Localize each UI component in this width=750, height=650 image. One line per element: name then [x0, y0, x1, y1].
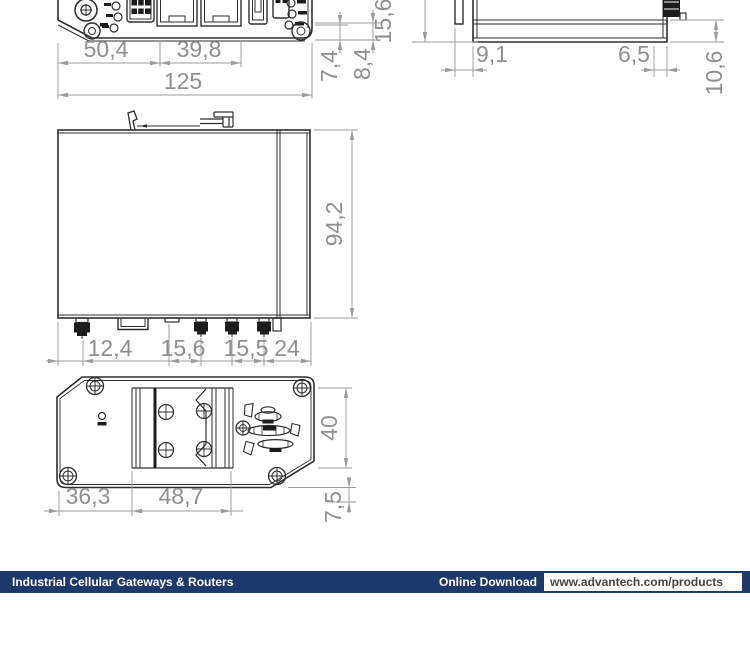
dim-side-height: 15,6	[370, 0, 478, 43]
clip-foot	[273, 318, 281, 331]
footer-right-group: Online Download www.advantech.com/produc…	[439, 571, 750, 593]
side-mount-tab	[455, 0, 463, 24]
din-screw-1	[159, 405, 174, 420]
dim-label-total-width: 125	[164, 68, 202, 94]
din-clip-spring-line	[137, 124, 200, 127]
side-antenna-connector	[663, 0, 686, 20]
main-body-inner-lines	[58, 130, 310, 318]
din-clip-hook	[128, 111, 137, 130]
dim-side-tab: 9,1	[441, 28, 508, 77]
main-elevation-view	[58, 111, 310, 339]
dim-label-conn-h1: 7,4	[316, 50, 342, 82]
din-clip-latch	[200, 112, 233, 127]
dim-main-depth: 94,2	[314, 130, 358, 318]
ethernet-port-1	[157, 0, 197, 26]
dim-label-conn2: 15,6	[161, 335, 206, 361]
bottom-view	[57, 377, 314, 488]
dim-label-conn3: 15,5	[224, 335, 269, 361]
dim-label-din-height: 40	[316, 415, 342, 441]
dim-label-lip-height: 10,6	[701, 51, 727, 96]
corner-screw-top-right	[294, 380, 311, 397]
dim-side-conn-offset: 6,5	[618, 41, 680, 77]
corner-screw-top-left	[87, 378, 104, 395]
side-profile-view	[455, 0, 686, 42]
din-screw-3	[159, 443, 174, 458]
dim-bottom-clip-depth: 7,5	[288, 477, 356, 523]
side-body-outline	[473, 0, 667, 42]
side-body-inner-lines	[473, 0, 667, 38]
dim-label-conn1: 12,4	[88, 335, 133, 361]
main-body-outline	[58, 130, 310, 318]
online-download-label: Online Download	[439, 575, 537, 589]
power-connector	[127, 0, 154, 22]
corner-screw-bottom-right	[269, 468, 286, 485]
dim-label-conn-offset: 6,5	[618, 41, 650, 67]
dim-label-din-offset: 36,3	[66, 483, 111, 509]
dim-front-total: 125	[58, 68, 312, 97]
technical-drawing: 50,4 39,8 125 7,4 8,4 15,6	[0, 0, 750, 565]
dim-bottom-din-height: 40	[316, 388, 352, 468]
din-screw-4	[197, 442, 212, 457]
dim-label-tab-width: 9,1	[476, 41, 508, 67]
dim-label-din-width: 48,7	[159, 483, 204, 509]
din-screw-2	[197, 404, 212, 419]
dim-label-conn-h2: 8,4	[349, 48, 375, 80]
footer-category-title: Industrial Cellular Gateways & Routers	[0, 575, 233, 589]
footer-url: www.advantech.com/products	[550, 575, 723, 589]
cable-slot	[118, 318, 148, 330]
footer-bar: Industrial Cellular Gateways & Routers O…	[0, 571, 750, 593]
usb-port	[249, 0, 267, 24]
antenna-connector-left	[75, 0, 97, 21]
front-panel-view	[58, 0, 312, 41]
dim-label-conn4: 24	[274, 335, 300, 361]
ethernet-port-2	[201, 0, 241, 26]
corner-screw-bottom-left	[60, 468, 77, 485]
dim-label-eth-offset: 50,4	[84, 36, 129, 62]
dim-side-lip: 10,6	[670, 20, 727, 95]
dim-label-eth-width: 39,8	[177, 36, 222, 62]
status-leds-left	[102, 2, 122, 32]
dim-label-depth: 94,2	[321, 202, 347, 247]
dim-label-clip-depth: 7,5	[320, 491, 346, 523]
datasheet-page: 50,4 39,8 125 7,4 8,4 15,6	[0, 0, 750, 650]
dim-label-body-height: 15,6	[370, 0, 396, 43]
footer-url-box: www.advantech.com/products	[544, 573, 742, 591]
